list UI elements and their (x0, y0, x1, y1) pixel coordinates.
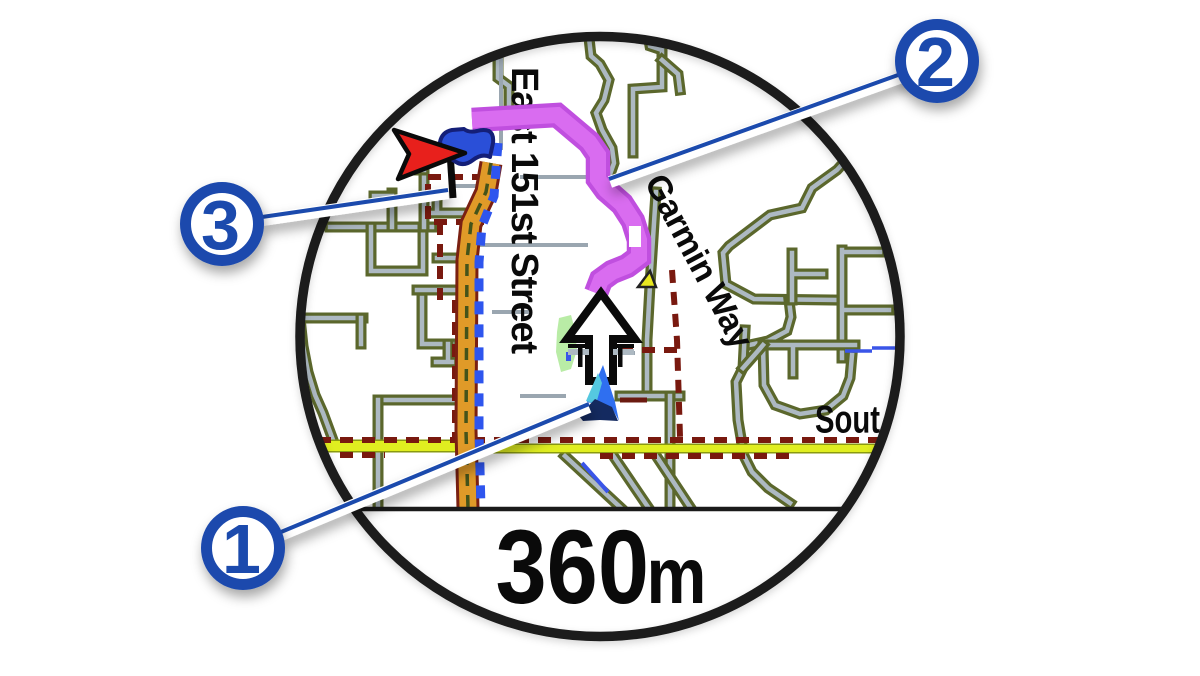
svg-text:3: 3 (201, 186, 240, 264)
svg-text:2: 2 (916, 23, 955, 101)
svg-text:360: 360 (496, 508, 649, 625)
svg-text:m: m (647, 531, 707, 621)
svg-text:1: 1 (222, 510, 261, 588)
svg-text:Sout: Sout (815, 399, 880, 442)
